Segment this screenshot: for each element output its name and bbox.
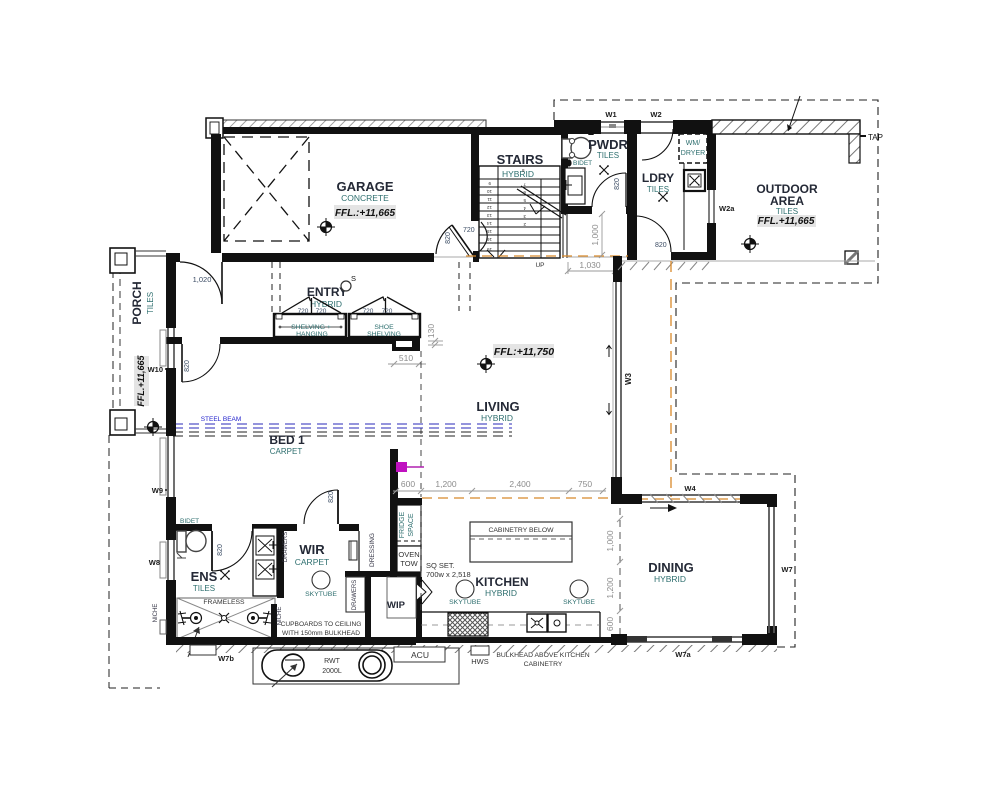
svg-text:510: 510 [399, 353, 413, 363]
svg-text:820: 820 [328, 491, 335, 503]
svg-text:NICHE: NICHE [153, 604, 159, 623]
svg-text:DINING: DINING [648, 560, 694, 575]
svg-text:DRYER: DRYER [681, 150, 705, 157]
svg-text:WM/: WM/ [686, 140, 700, 147]
svg-text:ENS: ENS [191, 569, 218, 584]
svg-text:W9: W9 [152, 486, 163, 495]
svg-text:RWT: RWT [324, 658, 341, 665]
svg-text:HWS: HWS [471, 657, 489, 666]
svg-text:LDRY: LDRY [642, 171, 674, 185]
svg-text:CARPET: CARPET [270, 447, 303, 456]
svg-text:BIDET: BIDET [180, 518, 199, 525]
svg-text:CUPBOARDS TO CEILING: CUPBOARDS TO CEILING [281, 621, 362, 628]
svg-text:S: S [351, 274, 356, 283]
svg-text:SPACE: SPACE [408, 513, 415, 537]
svg-text:HYBRID: HYBRID [481, 413, 513, 423]
svg-text:600: 600 [401, 479, 415, 489]
svg-text:AREA: AREA [770, 194, 804, 208]
svg-text:W4: W4 [684, 484, 696, 493]
svg-text:ACU: ACU [411, 650, 429, 660]
svg-text:TOW: TOW [400, 559, 418, 568]
svg-text:2,400: 2,400 [509, 479, 531, 489]
svg-text:W1: W1 [605, 110, 616, 119]
svg-text:720: 720 [316, 308, 327, 315]
svg-text:TILES: TILES [193, 584, 215, 593]
svg-text:W3: W3 [624, 372, 633, 385]
svg-text:STEEL BEAM: STEEL BEAM [201, 416, 242, 423]
svg-text:1,000: 1,000 [590, 224, 600, 246]
svg-text:FRIDGE: FRIDGE [399, 511, 406, 538]
svg-text:W8: W8 [149, 558, 160, 567]
svg-text:SKYTUBE: SKYTUBE [563, 599, 595, 606]
svg-text:820: 820 [217, 544, 224, 556]
svg-text:CABINETRY BELOW: CABINETRY BELOW [488, 527, 554, 534]
svg-text:SHELVING: SHELVING [367, 331, 401, 338]
svg-text:W2: W2 [650, 110, 661, 119]
svg-text:1,200: 1,200 [435, 479, 457, 489]
svg-text:W7b: W7b [218, 654, 234, 663]
svg-text:HYBRID: HYBRID [485, 588, 517, 598]
svg-text:1,200: 1,200 [605, 577, 615, 599]
svg-text:WIR: WIR [299, 542, 325, 557]
svg-text:SKYTUBE: SKYTUBE [449, 599, 481, 606]
svg-text:WITH 150mm BULKHEAD: WITH 150mm BULKHEAD [282, 630, 360, 637]
svg-text:16: 16 [486, 237, 492, 242]
svg-text:TILES: TILES [776, 207, 798, 216]
svg-text:PORCH: PORCH [130, 281, 144, 324]
svg-text:SHOE: SHOE [374, 324, 394, 331]
svg-text:FRAMELESS: FRAMELESS [203, 599, 245, 606]
svg-text:LIVING: LIVING [476, 399, 519, 414]
svg-text:750: 750 [578, 479, 592, 489]
svg-text:HYBRID: HYBRID [654, 574, 686, 584]
svg-text:TAP: TAP [868, 133, 883, 142]
svg-text:600: 600 [605, 617, 615, 631]
svg-text:BIDET: BIDET [573, 160, 592, 167]
svg-text:FFL.:+11,665: FFL.:+11,665 [335, 208, 396, 219]
svg-text:720: 720 [363, 308, 374, 315]
svg-text:SQ SET.: SQ SET. [426, 561, 455, 570]
svg-text:SKYTUBE: SKYTUBE [305, 591, 337, 598]
svg-text:11: 11 [487, 197, 492, 202]
svg-text:FFL.+11,665: FFL.+11,665 [136, 354, 146, 406]
svg-text:130: 130 [426, 324, 436, 338]
svg-text:WIP: WIP [387, 600, 406, 611]
svg-text:700w x 2,518: 700w x 2,518 [426, 570, 471, 579]
svg-text:BULKHEAD ABOVE KITCHEN: BULKHEAD ABOVE KITCHEN [496, 652, 589, 659]
svg-text:1,000: 1,000 [605, 530, 615, 552]
svg-text:16: 16 [486, 247, 492, 252]
svg-text:12: 12 [486, 205, 492, 210]
svg-text:BED 1: BED 1 [269, 433, 305, 447]
svg-text:720: 720 [382, 308, 393, 315]
svg-text:CONCRETE: CONCRETE [341, 193, 389, 203]
svg-text:W10: W10 [148, 365, 163, 374]
svg-text:HANGING: HANGING [296, 331, 328, 338]
svg-text:FFL.+11,665: FFL.+11,665 [758, 216, 815, 227]
svg-text:720: 720 [298, 308, 309, 315]
svg-text:STAIRS: STAIRS [497, 152, 544, 167]
svg-text:HYBRID: HYBRID [502, 169, 534, 179]
svg-text:820: 820 [655, 242, 667, 249]
svg-text:PWDR: PWDR [588, 137, 628, 152]
svg-text:820: 820 [445, 232, 452, 244]
svg-text:720: 720 [463, 227, 475, 234]
svg-text:W7: W7 [781, 565, 792, 574]
svg-text:13: 13 [486, 213, 492, 218]
svg-text:2000L: 2000L [322, 668, 342, 675]
svg-text:15: 15 [486, 229, 492, 234]
svg-text:DRAWERS: DRAWERS [283, 532, 289, 562]
svg-text:CARPET: CARPET [295, 557, 329, 567]
svg-text:14: 14 [486, 221, 492, 226]
svg-text:820: 820 [184, 360, 191, 372]
svg-text:TILES: TILES [647, 185, 669, 194]
svg-text:820: 820 [614, 178, 621, 190]
svg-text:SHELVING +: SHELVING + [291, 324, 331, 331]
svg-text:CABINETRY: CABINETRY [524, 661, 563, 668]
svg-text:W2a: W2a [719, 204, 735, 213]
svg-text:TILES: TILES [597, 151, 619, 160]
svg-text:FFL:+11,750: FFL:+11,750 [494, 346, 554, 358]
svg-text:GARAGE: GARAGE [336, 179, 393, 194]
svg-text:1,030: 1,030 [579, 260, 601, 270]
svg-text:DRESSING: DRESSING [369, 533, 376, 567]
svg-text:TILES: TILES [146, 292, 155, 314]
svg-text:1,020: 1,020 [193, 275, 212, 284]
svg-text:10: 10 [486, 189, 492, 194]
svg-text:UP: UP [535, 262, 544, 269]
svg-text:DRAWERS: DRAWERS [352, 580, 358, 610]
svg-text:KITCHEN: KITCHEN [475, 575, 528, 589]
svg-text:OVEN: OVEN [398, 550, 419, 559]
